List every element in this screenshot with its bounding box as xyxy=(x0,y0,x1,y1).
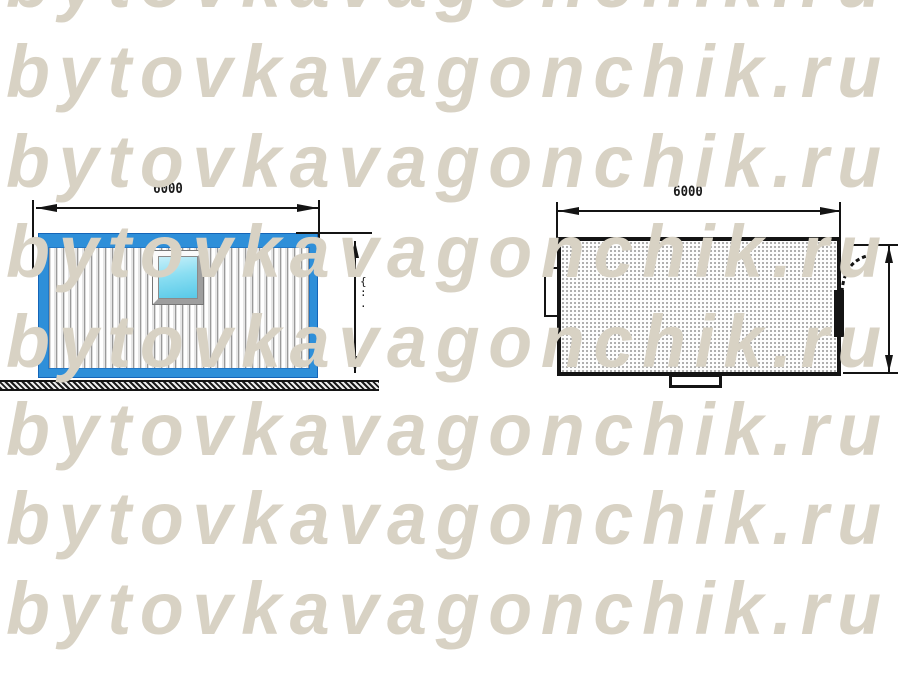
arrowhead-right-icon xyxy=(297,204,318,212)
plan-extension-line-left xyxy=(556,202,558,238)
plan-width-extension-bottom xyxy=(843,372,898,374)
elevation-extension-line-left xyxy=(32,200,34,274)
door-swing-arc xyxy=(838,252,874,294)
arrowhead-right-icon xyxy=(820,207,841,215)
arrowhead-left-icon xyxy=(36,204,57,212)
arrowhead-left-icon xyxy=(558,207,579,215)
plan-extension-line-right xyxy=(839,202,841,238)
height-dim-line xyxy=(354,241,356,373)
height-extension-line xyxy=(296,232,372,234)
height-dim-ticks: { : . xyxy=(360,276,367,309)
arrowhead-up-icon xyxy=(885,246,893,263)
plan-window-mark xyxy=(544,267,559,317)
plan-length-label: 6000 xyxy=(653,184,723,200)
entrance-step xyxy=(669,374,722,388)
window-glass xyxy=(158,256,198,299)
ground-hatch xyxy=(0,380,379,391)
arrowhead-up-icon xyxy=(351,241,359,258)
door-leaf xyxy=(834,290,844,337)
elevation-extension-line-right xyxy=(318,200,320,274)
elevation-length-label: 6000 xyxy=(133,181,203,197)
cabin-window xyxy=(152,250,204,305)
elevation-dim-line xyxy=(36,207,318,209)
arrowhead-down-icon xyxy=(885,355,893,372)
drawing-canvas: 6000 { : . 6000 xyxy=(0,0,900,675)
plan-outline xyxy=(557,237,841,376)
plan-dim-line xyxy=(558,210,841,212)
arrowhead-down-icon xyxy=(351,356,359,373)
plan-width-dim-line xyxy=(888,246,890,372)
